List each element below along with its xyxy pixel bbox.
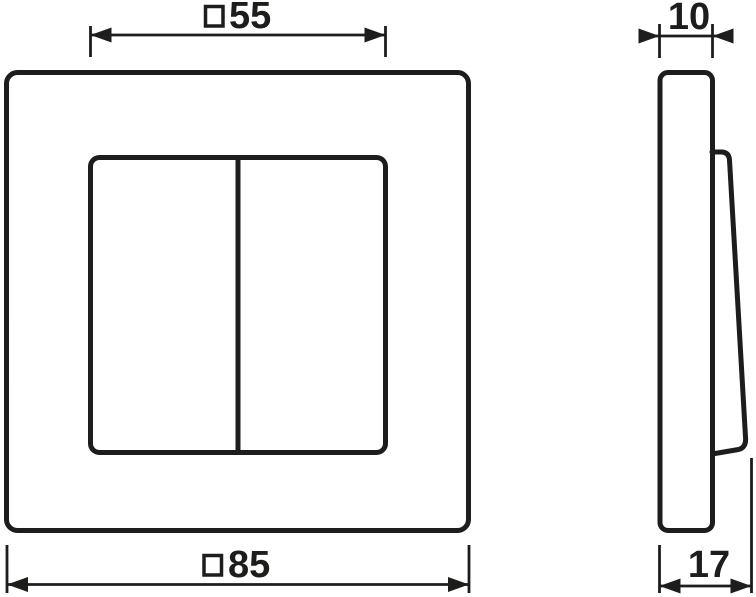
- inner-width-dimension: 55: [91, 0, 386, 57]
- side-depth-dimension: 17: [660, 458, 752, 594]
- square-symbol-icon: [206, 7, 224, 27]
- technical-dimension-drawing: 55 85: [0, 0, 756, 597]
- front-view: 55 85: [7, 0, 470, 593]
- arrow-left-icon: [639, 29, 660, 44]
- drawing-canvas: 55 85: [0, 0, 756, 597]
- arrow-right-icon: [448, 577, 469, 592]
- outer-width-value: 85: [228, 544, 270, 586]
- side-depth-value: 17: [688, 544, 730, 586]
- side-width-value: 10: [668, 0, 710, 38]
- side-width-dimension: 10: [639, 0, 734, 58]
- side-profile-outline: [660, 73, 713, 531]
- rocker-profile-line: [712, 152, 746, 454]
- side-view: 10 17: [639, 0, 752, 594]
- arrow-right-icon: [365, 28, 386, 43]
- square-symbol-icon: [204, 556, 222, 576]
- outer-width-dimension: 85: [7, 544, 469, 593]
- arrow-right-icon: [713, 29, 734, 44]
- arrow-left-icon: [7, 577, 28, 592]
- inner-width-value: 55: [229, 0, 271, 37]
- arrow-right-icon: [731, 579, 752, 594]
- arrow-left-icon: [91, 28, 112, 43]
- arrow-left-icon: [660, 579, 681, 594]
